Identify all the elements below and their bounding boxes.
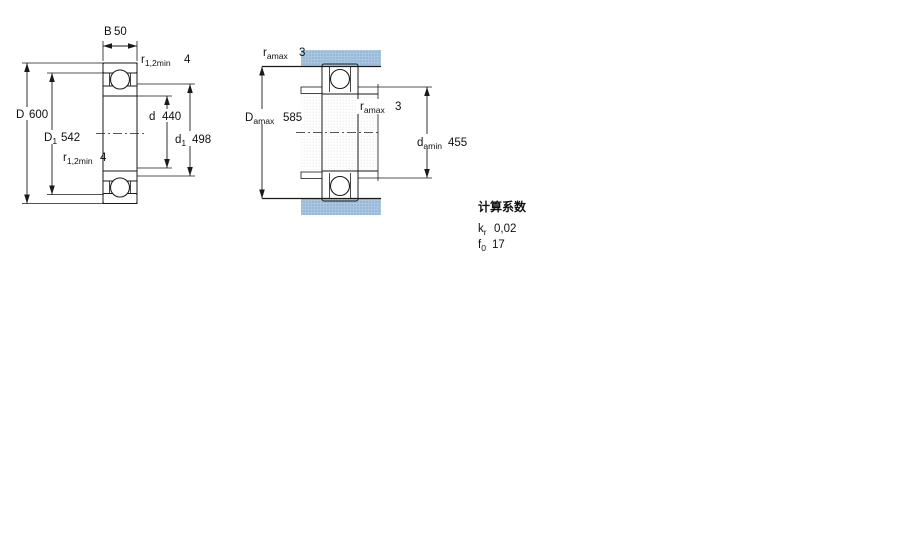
ball-bottom xyxy=(111,178,130,197)
shaft-shoulder-top xyxy=(301,87,322,94)
factor-subscript: r xyxy=(484,227,487,237)
ball-top xyxy=(111,70,130,89)
dim-subscript: amax xyxy=(267,51,289,61)
dim-value: 600 xyxy=(29,109,48,121)
factors-title: 计算系数 xyxy=(478,199,527,214)
dim-value: 498 xyxy=(192,134,211,146)
factor-f0: f017 xyxy=(478,239,505,253)
dim-value: 542 xyxy=(61,132,80,144)
dim-value: 455 xyxy=(448,137,467,149)
technical-drawing-canvas: B50 r1,2min4 D600 D1542 r1,2min4 d440 d1… xyxy=(0,0,900,560)
ball-top xyxy=(331,70,350,89)
factor-kr: kr0,02 xyxy=(478,223,516,237)
dim-subscript: 1,2min xyxy=(145,58,171,68)
dim-label-d: d440 xyxy=(149,111,181,123)
dim-value: 585 xyxy=(283,112,302,124)
dim-subscript: 1 xyxy=(52,136,57,146)
dim-label-r12min-top: r1,2min4 xyxy=(141,54,191,68)
dim-value: 440 xyxy=(162,111,181,123)
dim-symbol: D xyxy=(16,109,24,121)
calculation-factors: 计算系数 kr0,02 f017 xyxy=(478,199,527,253)
factor-value: 17 xyxy=(492,239,505,251)
dim-value: 4 xyxy=(184,54,191,66)
dim-label-d1: d1498 xyxy=(175,134,211,148)
dim-subscript: 1,2min xyxy=(67,156,93,166)
mounting-view: ramax3 Damax585 ramax3 damin455 xyxy=(243,47,474,215)
dim-value: 3 xyxy=(395,101,401,113)
dim-symbol: d xyxy=(149,111,155,123)
dim-label-D: D600 xyxy=(16,109,48,121)
dim-value: 50 xyxy=(114,26,127,38)
dim-label-D1: D1542 xyxy=(44,132,80,146)
dim-value: 4 xyxy=(100,152,107,164)
factor-subscript: 0 xyxy=(481,243,486,253)
dim-subscript: amin xyxy=(423,141,442,151)
dim-subscript: amax xyxy=(364,105,386,115)
dim-symbol: D xyxy=(245,112,253,124)
shaft-shoulder-bottom xyxy=(301,172,322,179)
cross-section-view: B50 r1,2min4 D600 D1542 r1,2min4 d440 d1… xyxy=(14,26,216,204)
ball-bottom xyxy=(331,177,350,196)
dim-label-r12min-side: r1,2min4 xyxy=(63,152,107,166)
bearing-drawing-svg: B50 r1,2min4 D600 D1542 r1,2min4 d440 d1… xyxy=(0,0,900,560)
factor-value: 0,02 xyxy=(494,223,516,235)
dim-symbol: B xyxy=(104,26,112,38)
dim-symbol: D xyxy=(44,132,52,144)
dim-subscript: amax xyxy=(253,116,275,126)
dim-subscript: 1 xyxy=(181,138,186,148)
dim-label-ramax-top: ramax3 xyxy=(263,47,305,61)
dim-value: 3 xyxy=(299,47,305,59)
dim-label-B: B50 xyxy=(104,26,127,38)
